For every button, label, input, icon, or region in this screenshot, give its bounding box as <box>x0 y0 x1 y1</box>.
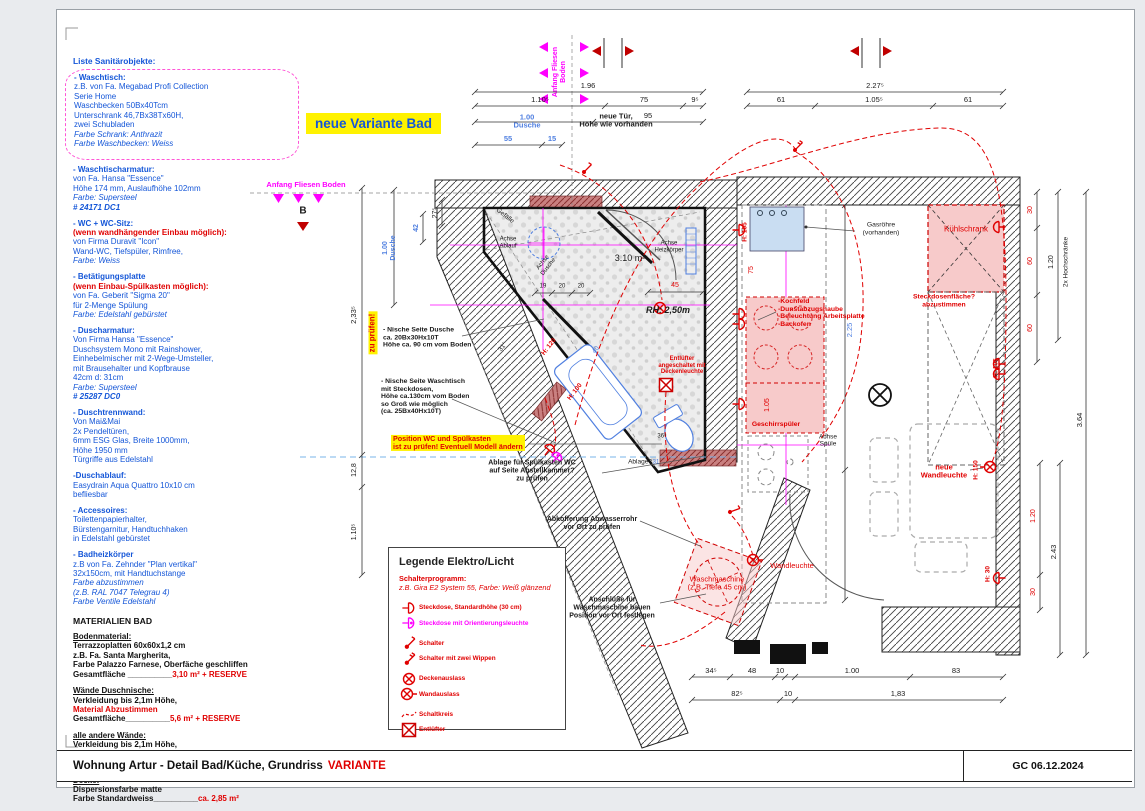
drawing-date: GC 06.12.2024 <box>963 751 1132 781</box>
sink <box>748 436 808 492</box>
list-item-title: - Betätigungsplatte <box>73 272 295 281</box>
list-item-finish: Farbe Schrank: Anthrazit Farbe Waschbeck… <box>74 130 292 149</box>
note-ablage-spuelkasten: Ablage für Spülkasten WC auf Seite Abste… <box>488 459 576 482</box>
dim-label: 48 <box>748 667 756 675</box>
sanitary-object-list: Liste Sanitärobjekte: - Waschtisch: z.B.… <box>73 57 295 811</box>
gas-stove <box>750 207 804 251</box>
list-item-title: - Waschtisch: <box>74 73 292 82</box>
drawing-canvas: Liste Sanitärobjekte: - Waschtisch: z.B.… <box>0 0 1145 793</box>
dim-label: 12,8 <box>351 463 359 477</box>
material-body: Verkleidung bis 2,1m Höhe, <box>73 740 295 749</box>
note-abkofferung: Abkofferung Abwasserrohr vor Ort zu prüf… <box>547 516 637 532</box>
dim-label: 82⁵ <box>731 690 742 698</box>
exhaust-fan-icon <box>660 379 673 392</box>
material-total: Gesamtfläche__________5,6 m² + RESERVE <box>73 714 295 723</box>
switch-icon <box>399 635 419 651</box>
label-flaeche: 3.10 m² <box>615 253 646 263</box>
dim-label: 61 <box>777 96 785 104</box>
legend-item: Entlüfter <box>399 723 555 736</box>
list-item-finish: Farbe: Weiss <box>73 256 295 265</box>
dim-label: 10 <box>784 690 792 698</box>
legend-item: Schalter <box>399 637 555 650</box>
label-achse-ablauf: Achse Ablauf <box>499 236 516 249</box>
dim-label: 20 <box>578 284 585 291</box>
dim-label: 45 <box>671 282 679 290</box>
dim-label: H: 30 <box>984 566 991 582</box>
note-gasroehre: Gasröhre (vorhanden) <box>863 221 900 236</box>
socket-orientation-light-icon <box>399 616 419 630</box>
list-item-body: von Fa. Hansa "Essence" Höhe 174 mm, Aus… <box>73 174 295 193</box>
dim-label: 1.00 Dusche <box>513 114 540 131</box>
tall-cabinet-2 <box>928 292 1004 465</box>
list-item-body: Von Mai&Mai 2x Pendeltüren, 6mm ESG Glas… <box>73 417 295 464</box>
dim-label: 75 <box>748 266 756 274</box>
list-item: - Duscharmatur: Von Firma Hansa "Essence… <box>73 326 295 402</box>
dim-label: 1,83 <box>891 690 906 698</box>
dim-label: 1.96 <box>581 82 596 90</box>
dim-label: H: 150 <box>972 460 979 480</box>
legend-title: Legende Elektro/Licht <box>399 556 555 568</box>
note-entluefter: Entlüfter angeschaltet mit Deckenleuchte <box>658 356 705 376</box>
wall-outlet-icon <box>399 687 419 701</box>
list-heading: Liste Sanitärobjekte: <box>73 57 295 67</box>
switch-icon <box>727 503 740 517</box>
list-item-condition: (wenn Einbau-Spülkasten möglich): <box>73 282 295 291</box>
dim-label: 2.43 <box>1050 545 1058 560</box>
legend-item-label: Deckenauslass <box>419 675 465 682</box>
dim-label: 10 <box>776 667 784 675</box>
list-item: -Duschablauf: Easydrain Aqua Quattro 10x… <box>73 471 295 499</box>
material-heading: Wände Duschnische: <box>73 686 295 695</box>
note-kuehlschrank: Kühlschrank <box>944 226 988 235</box>
ceiling-outlet-black-icon <box>869 384 891 406</box>
dim-label: 2.27⁵ <box>866 82 884 90</box>
dim-label: 31 <box>653 460 660 467</box>
dim-label: 60 <box>1027 257 1035 265</box>
dim-label: 36⁵ <box>657 434 666 441</box>
dim-label: 1.00 Dusche <box>382 235 398 260</box>
dim-label: 1.20 <box>1048 255 1056 269</box>
dim-label: 1.05 <box>764 398 772 412</box>
list-item: - Waschtisch: z.B. von Fa. Megabad Profi… <box>74 73 292 149</box>
material-total-value: 3,10 m² + RESERVE <box>172 670 247 679</box>
note-anschluesse: Anschlüße für Waschmaschine bauen Positi… <box>569 596 655 619</box>
list-item-condition: (wenn wandhängender Einbau möglich): <box>73 228 295 237</box>
note-geschirrspueler: Geschirrspüler <box>752 421 800 429</box>
list-item-title: - WC + WC-Sitz: <box>73 219 295 228</box>
switch-two-rockers-icon <box>793 141 803 152</box>
ceiling-outlet-icon <box>399 672 419 686</box>
label-anfang-fliesen-left: Anfang Fliesen Boden <box>266 181 345 189</box>
list-item-title: - Badheizkörper <box>73 550 295 559</box>
list-item-finish: Farbe abzustimmen (z.B. RAL 7047 Telegra… <box>73 578 295 606</box>
material-total-value: ca. 2,85 m² <box>198 794 239 803</box>
note-zu-pruefen: zu prüfen! <box>369 312 378 355</box>
highlight-loop: - Waschtisch: z.B. von Fa. Megabad Profi… <box>65 69 299 160</box>
list-item-body: Von Firma Hansa "Essence" Duschsystem Mo… <box>73 335 295 382</box>
material-note: Material Abzustimmen <box>73 705 295 714</box>
note-nische-waschtisch: - Nische Seite Waschtisch mit Steckdosen… <box>381 378 469 416</box>
title-block: Wohnung Artur - Detail Bad/Küche, Grundr… <box>57 750 1132 782</box>
dim-label: 61 <box>964 96 972 104</box>
list-item-body: von Firma Duravit "Icon" Wand-WC, Tiefsp… <box>73 237 295 256</box>
drawing-title-variant: VARIANTE <box>328 760 386 772</box>
dim-label: H: 105 <box>992 358 999 378</box>
label-achse-heizkoerper: Achse Heizkörper <box>654 240 683 253</box>
note-neue-wandleuchte: neue Wandleuchte <box>921 464 967 481</box>
dim-label: 1.10⁵ <box>531 96 549 104</box>
material-heading: alle andere Wände: <box>73 731 295 740</box>
list-item-title: - Duschtrennwand: <box>73 408 295 417</box>
dim-label: 30 <box>1030 588 1038 596</box>
dim-label: 20 <box>559 284 566 291</box>
note-position-wc: Position WC und Spülkasten ist zu prüfen… <box>391 435 525 451</box>
legend-item: Schalter mit zwei Wippen <box>399 652 555 665</box>
note-nische-dusche: - Nische Seite Dusche ca. 20Bx30Hx10T Hö… <box>383 327 471 350</box>
list-item-finish: Farbe: Supersteel <box>73 193 295 202</box>
dim-label: 83 <box>952 667 960 675</box>
drawing-title: Wohnung Artur - Detail Bad/Küche, Grundr… <box>57 751 963 781</box>
dim-label: 27⁵ <box>432 208 440 219</box>
dim-label: 1.20 <box>1030 509 1038 523</box>
legend-subtitle-2: z.B. Gira E2 System 55, Farbe: Weiß glän… <box>399 583 555 592</box>
dim-label: 1.05⁵ <box>865 96 883 104</box>
list-item-code: # 25287 DC0 <box>73 392 295 401</box>
dim-label: 95 <box>644 112 652 120</box>
legend-item-label: Schalter <box>419 640 444 647</box>
material-body: Verkleidung bis 2,1m Höhe, <box>73 696 295 705</box>
materials-heading: MATERIALIEN BAD <box>73 616 295 626</box>
list-item-title: - Waschtischarmatur: <box>73 165 295 174</box>
list-item-body: Toilettenpapierhalter, Bürstengarnitur, … <box>73 515 295 543</box>
legend-item-label: Schalter mit zwei Wippen <box>419 655 496 662</box>
dim-label: 30 <box>1027 206 1035 214</box>
list-item-finish: Farbe: Edelstahl gebürstet <box>73 310 295 319</box>
circuit-line-icon <box>399 708 419 720</box>
wall-light-icon <box>980 462 996 473</box>
material-total-value: 5,6 m² + RESERVE <box>170 714 240 723</box>
note-wandleuchte: Wandleuchte <box>770 562 814 570</box>
legend-item-label: Steckdose, Standardhöhe (30 cm) <box>419 604 522 611</box>
note-steckdosenflaeche: Steckdosenfläche? abzustimmen <box>913 293 975 308</box>
dim-label: 15 <box>548 135 556 143</box>
dim-label: 55 <box>504 135 512 143</box>
dim-label: 19 <box>540 284 547 291</box>
dim-label: 9⁵ <box>691 96 698 104</box>
list-item: - Badheizkörper z.B von Fa. Zehnder "Pla… <box>73 550 295 607</box>
dining-table <box>870 424 998 572</box>
list-item-body: z.B. von Fa. Megabad Profi Collection Se… <box>74 82 292 129</box>
list-item-body: von Fa. Geberit "Sigma 20" für 2-Menge S… <box>73 291 295 310</box>
marker-b: B <box>299 205 306 216</box>
switch-icon <box>582 163 592 174</box>
material-total-label: Gesamtfläche __________ <box>73 670 172 679</box>
exhaust-fan-icon <box>399 722 419 738</box>
dim-label: 42 <box>413 224 421 232</box>
material-item: Bodenmaterial: Terrazzoplatten 60x60x1,2… <box>73 632 295 679</box>
list-item-title: - Duscharmatur: <box>73 326 295 335</box>
list-item-body: Easydrain Aqua Quattro 10x10 cm befliesb… <box>73 481 295 500</box>
label-neue-tuer: neue Tür, Höhe wie vorhanden <box>579 113 652 130</box>
dim-label: 1.00 <box>845 667 860 675</box>
note-waschmaschine: Waschmaschine (z.B. Tiefe 45 cm) <box>688 576 747 593</box>
list-item: - Accessoires: Toilettenpapierhalter, Bü… <box>73 506 295 544</box>
material-body: Terrazzoplatten 60x60x1,2 cm z.B. Fa. Sa… <box>73 641 295 669</box>
material-item: Wände Duschnische: Verkleidung bis 2,1m … <box>73 686 295 724</box>
list-item-code: # 24171 DC1 <box>73 203 295 212</box>
legend-item: Steckdose mit Orientierungsleuchte <box>399 617 555 630</box>
dim-label: H: 105 <box>741 222 748 242</box>
legend-item: Deckenauslass <box>399 672 555 685</box>
material-total-label: Gesamtfläche__________ <box>73 714 170 723</box>
legend-item-label: Schaltkreis <box>419 711 453 718</box>
fridge-tall-cabinet <box>928 205 1004 292</box>
dim-label: 2,33⁵ <box>350 306 358 324</box>
marker-b-triangle <box>297 222 309 231</box>
drawing-title-text: Wohnung Artur - Detail Bad/Küche, Grundr… <box>73 760 323 772</box>
dim-label: 34⁵ <box>705 667 716 675</box>
material-heading: Bodenmaterial: <box>73 632 295 641</box>
dim-label: 2.25 <box>846 323 854 338</box>
material-total: Farbe Standardweiss__________ca. 2,85 m² <box>73 794 295 803</box>
material-total: Gesamtfläche __________3,10 m² + RESERVE <box>73 670 295 679</box>
legend-item-label: Entlüfter <box>419 726 445 733</box>
dim-label: 1.10⁵ <box>351 524 359 541</box>
list-item-title: -Duschablauf: <box>73 471 295 480</box>
label-hochschraenke: 2x Hochschränke <box>1062 237 1069 287</box>
entry-steps <box>734 640 828 664</box>
note-ablage-frage: Ablage? <box>628 458 652 465</box>
list-item-title: - Accessoires: <box>73 506 295 515</box>
label-achse-spuele: Achse Spüle <box>819 434 837 449</box>
switch-two-rockers-icon <box>399 651 419 667</box>
legend-item: Schaltkreis <box>399 708 555 721</box>
legend-box: Legende Elektro/Licht Schalterprogramm: … <box>388 547 566 730</box>
list-item: - Waschtischarmatur: von Fa. Hansa "Esse… <box>73 165 295 212</box>
list-item-body: z.B von Fa. Zehnder "Plan vertikal" 32x1… <box>73 560 295 579</box>
list-item: - Duschtrennwand: Von Mai&Mai 2x Pendelt… <box>73 408 295 465</box>
dim-label: 3.64 <box>1076 413 1084 428</box>
legend-item: Wandauslass <box>399 688 555 701</box>
label-anfang-fliesen-top: Anfang Fliesen Boden <box>552 47 568 97</box>
legend-subtitle: Schalterprogramm: <box>399 574 555 583</box>
legend-item-label: Wandauslass <box>419 691 460 698</box>
list-item-finish: Farbe: Supersteel <box>73 383 295 392</box>
plan-title: neue Variante Bad <box>306 113 441 134</box>
material-total-label: Farbe Standardweiss__________ <box>73 794 198 803</box>
dim-label: 75 <box>640 96 648 104</box>
dim-label: 60 <box>1027 324 1035 332</box>
legend-item-label: Steckdose mit Orientierungsleuchte <box>419 620 528 627</box>
list-item: - WC + WC-Sitz: (wenn wandhängender Einb… <box>73 219 295 266</box>
material-body: Dispersionsfarbe matte <box>73 785 295 794</box>
label-raumhoehe: RH: 2,50m <box>646 305 690 315</box>
list-item: - Betätigungsplatte (wenn Einbau-Spülkas… <box>73 272 295 319</box>
legend-item: Steckdose, Standardhöhe (30 cm) <box>399 601 555 614</box>
socket-icon <box>399 601 419 615</box>
